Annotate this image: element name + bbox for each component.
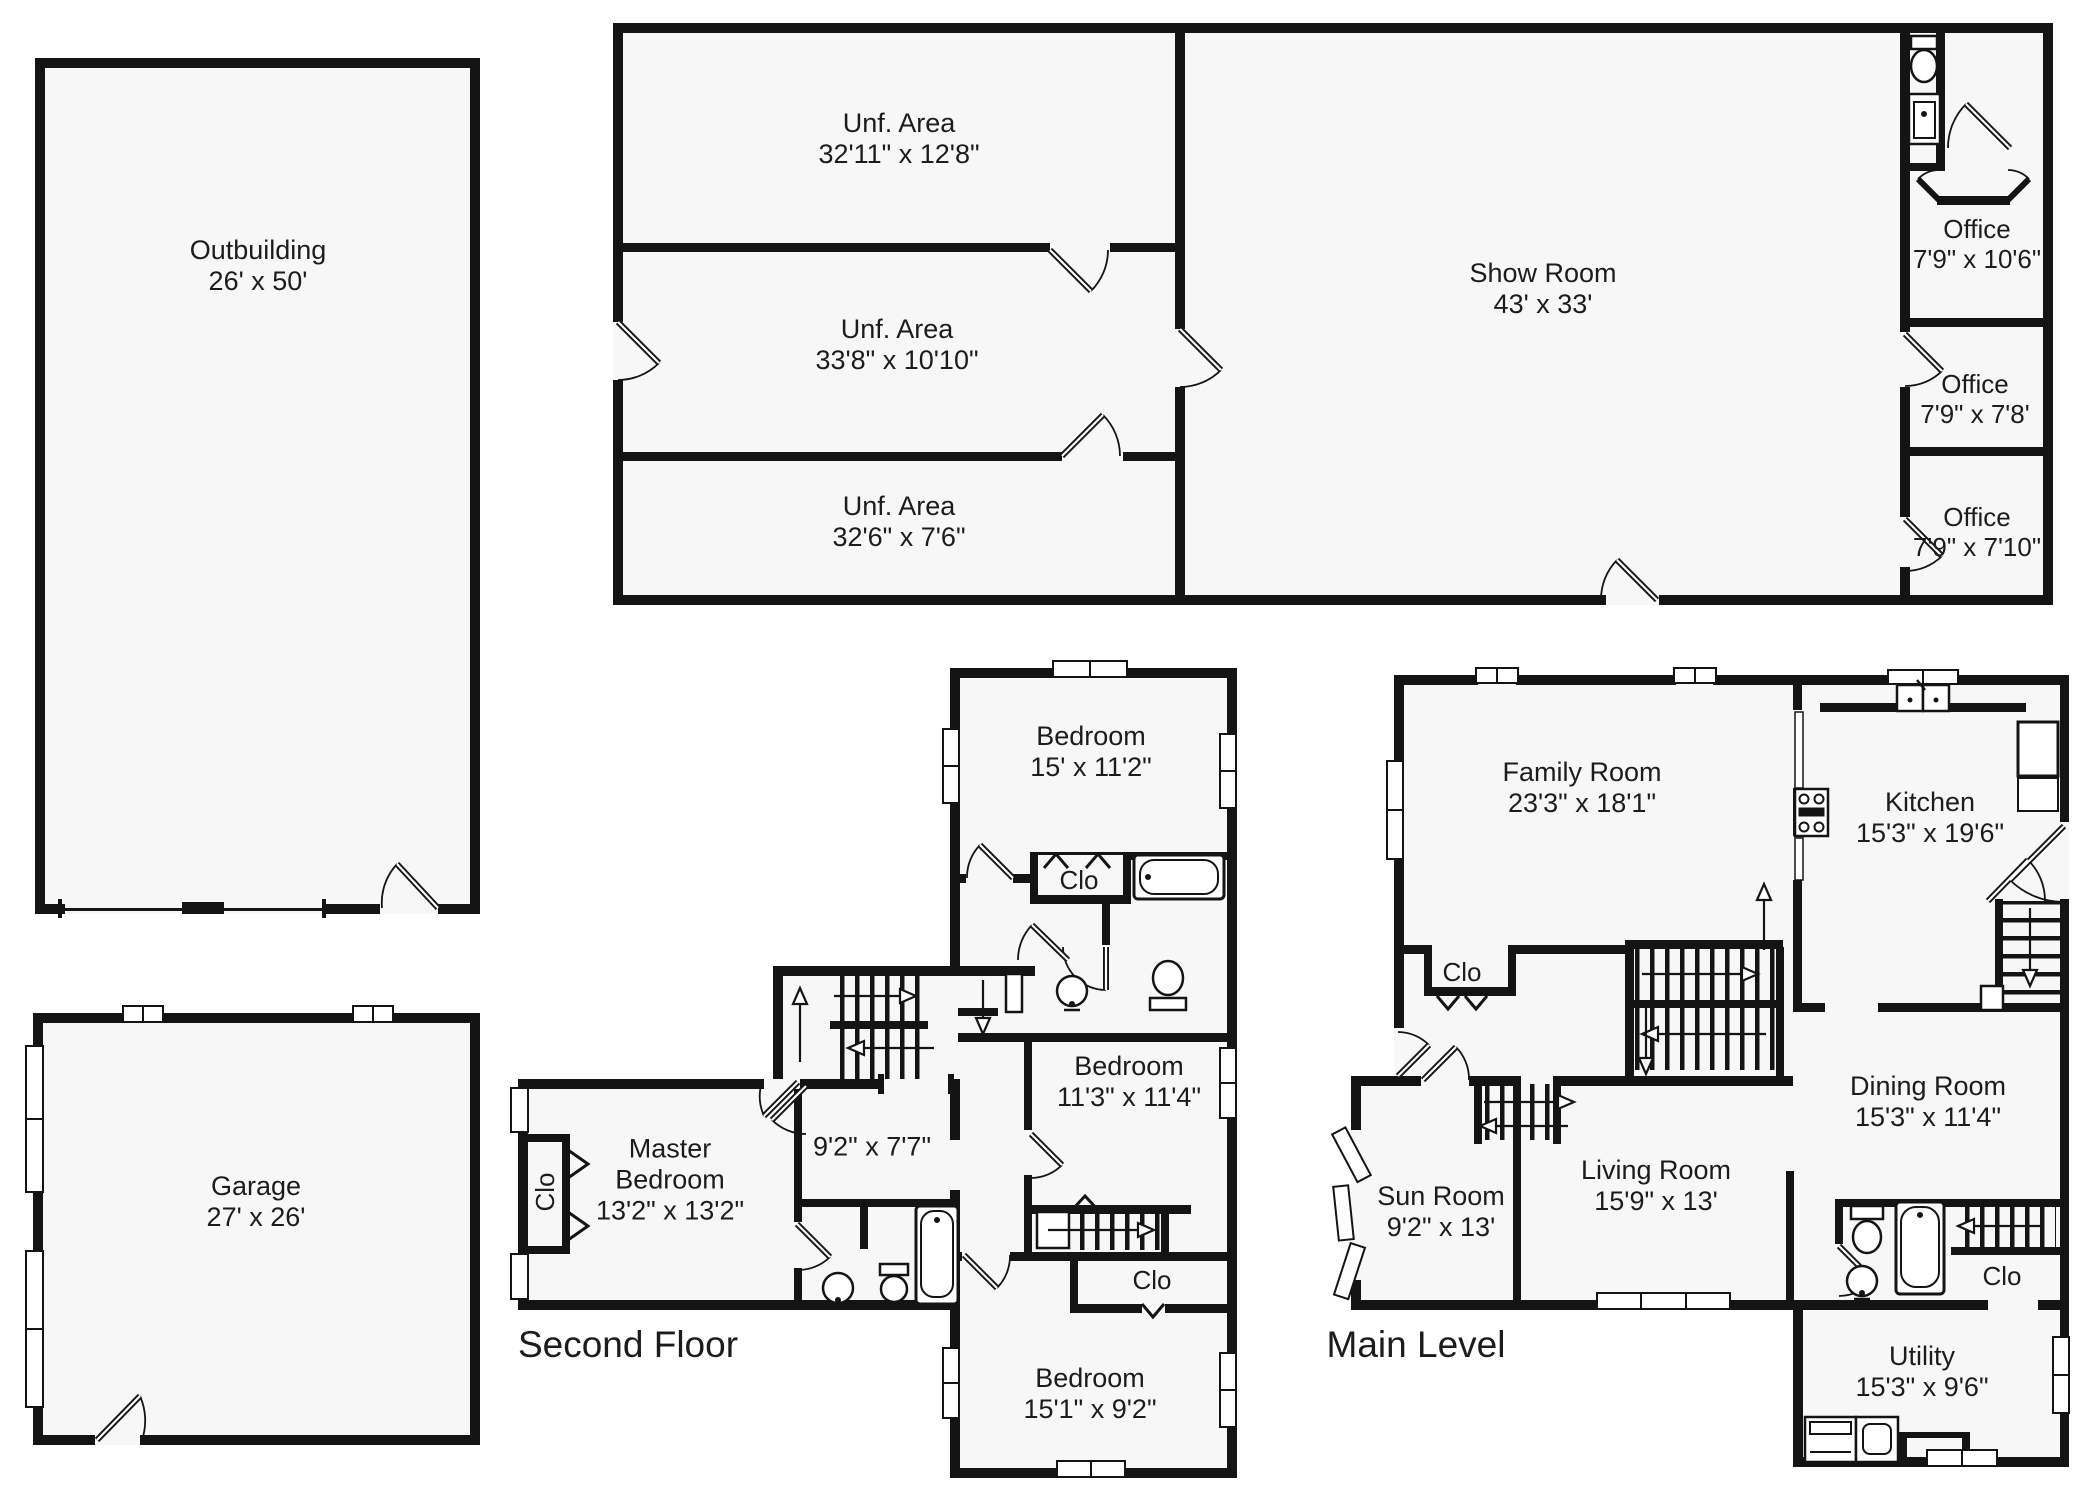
bathtub-icon [916,1206,958,1304]
closet-label: Clo [1059,865,1098,895]
room-label-sun-room: Sun Room 9'2" x 13' [1377,1181,1505,1243]
toilet-icon [1851,1206,1883,1253]
room-label-utility: Utility 15'3" x 9'6" [1855,1341,1988,1403]
room-label-unf-area-3: Unf. Area 32'6" x 7'6" [832,491,965,553]
room-label-office-2: Office 7'9" x 7'8' [1920,369,2029,429]
room-label-show-room: Show Room 43' x 33' [1469,258,1616,320]
sink-icon [823,1273,853,1303]
closet-label: Clo [1442,957,1481,987]
toilet-icon [1911,36,1937,82]
room-label-kitchen: Kitchen 15'3" x 19'6" [1856,787,2004,849]
washer-icon [1805,1417,1856,1462]
floor-label-second-floor: Second Floor [518,1325,738,1365]
bathtub-icon [1896,1202,1944,1294]
room-label-bedroom-top: Bedroom 15' x 11'2" [1030,721,1151,783]
closet-label: Clo [1982,1261,2021,1291]
sink-icon [1909,94,1940,144]
room-label-bedroom-mid: Bedroom 11'3" x 11'4" [1057,1051,1201,1113]
stove-icon [1795,789,1828,836]
closet-label: Clo [1132,1265,1171,1295]
floor-plan-page: Outbuilding 26' x 50' Unf. Area 32'11" x… [0,0,2093,1500]
room-label-outbuilding: Outbuilding 26' x 50' [190,235,327,297]
room-label-garage: Garage 27' x 26' [207,1171,306,1233]
room-label-office-1: Office 7'9" x 10'6" [1913,214,2041,274]
room-label-unf-area-1: Unf. Area 32'11" x 12'8" [818,108,979,170]
toilet-icon [880,1264,908,1302]
dryer-icon [1856,1417,1898,1462]
closet-label: Clo [530,1172,560,1211]
room-label-family-room: Family Room 23'3" x 18'1" [1502,757,1661,819]
kitchen-sink-icon [1897,680,1949,711]
room-label-living-room: Living Room 15'9" x 13' [1581,1155,1731,1217]
room-label-master-bedroom: Master Bedroom 13'2" x 13'2" [596,1134,744,1227]
room-label-bedroom-bottom: Bedroom 15'1" x 9'2" [1023,1363,1156,1425]
refrigerator-icon [2018,722,2058,811]
room-label-dining-room: Dining Room 15'3" x 11'4" [1850,1071,2006,1133]
room-label-unf-area-2: Unf. Area 33'8" x 10'10" [815,314,978,376]
toilet-icon [1150,961,1186,1010]
room-label-office-3: Office 7'9" x 7'10" [1913,502,2041,562]
floor-label-main-level: Main Level [1327,1325,1506,1365]
room-label-hall-room: 9'2" x 7'7" [813,1132,931,1163]
bathtub-icon [1134,855,1224,899]
